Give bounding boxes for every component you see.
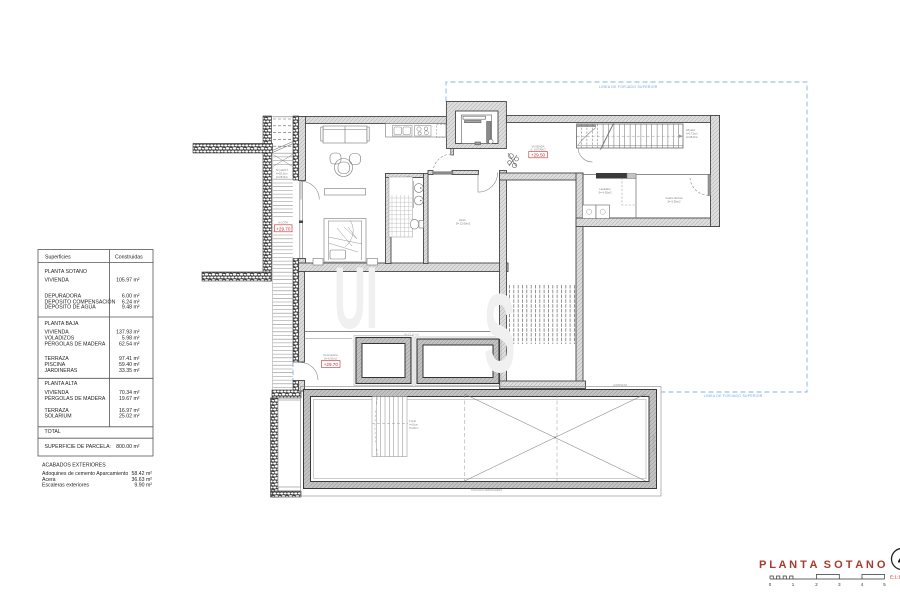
svg-text:Dorm.: Dorm. (459, 218, 467, 222)
svg-text:S: S (484, 272, 515, 397)
svg-text:18 peld.: 18 peld. (686, 128, 696, 132)
svg-text:+29.50: +29.50 (531, 153, 546, 158)
svg-text:33.35 m²: 33.35 m² (119, 368, 140, 374)
svg-text:105.97 m²: 105.97 m² (116, 278, 140, 284)
svg-text:S= 5.95m2: S= 5.95m2 (667, 200, 681, 204)
svg-text:TOTAL: TOTAL (45, 429, 61, 435)
svg-text:h=18.2cm: h=18.2cm (276, 171, 287, 175)
svg-text:19.67 m²: 19.67 m² (119, 396, 140, 402)
svg-text:Depuradora: Depuradora (323, 353, 338, 357)
svg-text:S= 4.05m2: S= 4.05m2 (598, 191, 612, 195)
svg-text:ACABADOS EXTERIORES: ACABADOS EXTERIORES (42, 463, 106, 469)
svg-text:SUPERFICIE DE PARCELA:: SUPERFICIE DE PARCELA: (45, 444, 112, 450)
svg-text:800.00 m²: 800.00 m² (116, 444, 140, 450)
svg-text:Construidas: Construidas (115, 255, 143, 261)
svg-text:H=28.0cm: H=28.0cm (686, 135, 698, 139)
svg-text:S. SOTANO: S. SOTANO (530, 147, 546, 151)
svg-text:H=28cm: H=28cm (409, 427, 418, 430)
svg-text:P L A N T A S O T A N O: P L A N T A S O T A N O (759, 559, 886, 571)
svg-text:+29.70: +29.70 (276, 226, 291, 231)
svg-text:Superficies: Superficies (45, 255, 71, 261)
svg-text:PLANTA SOTANO: PLANTA SOTANO (45, 269, 87, 275)
svg-text:JARDINERA: JARDINERA (613, 384, 628, 387)
svg-text:SOLARIUM: SOLARIUM (45, 414, 72, 420)
svg-text:PÉRGOLAS DE MADERA: PÉRGOLAS DE MADERA (45, 341, 106, 348)
svg-text:JARDINERAS: JARDINERAS (45, 368, 78, 374)
svg-text:H=28.0cm: H=28.0cm (276, 175, 288, 179)
svg-text:Lavadero: Lavadero (599, 187, 611, 191)
svg-text:A COTA: A COTA (278, 221, 288, 225)
svg-text:+29.70: +29.70 (324, 362, 339, 367)
svg-text:PÉRGOLAS DE MADERA: PÉRGOLAS DE MADERA (45, 395, 106, 402)
svg-text:9.48 m²: 9.48 m² (122, 305, 140, 311)
svg-text:9.90 m²: 9.90 m² (134, 483, 152, 489)
svg-text:Nº peld.17: Nº peld.17 (276, 168, 289, 172)
svg-text:CANALETA REBOSADERO: CANALETA REBOSADERO (471, 489, 502, 492)
svg-text:Escaleras exteriores: Escaleras exteriores (42, 483, 89, 489)
svg-text:LINEA DE FORJADO SUPERIOR: LINEA DE FORJADO SUPERIOR (704, 394, 763, 398)
svg-text:VIVIENDA: VIVIENDA (45, 278, 70, 284)
svg-text:UI: UI (334, 248, 378, 347)
svg-text:62.54 m²: 62.54 m² (119, 342, 140, 348)
svg-text:S= 13.10 m2: S= 13.10 m2 (404, 333, 419, 337)
svg-text:E:1:100: E:1:100 (890, 575, 900, 580)
svg-text:VASO PISCINA: VASO PISCINA (653, 434, 656, 452)
svg-text:PLANTA BAJA: PLANTA BAJA (45, 321, 79, 327)
svg-text:LINEA DE FORJADO SUPERIOR: LINEA DE FORJADO SUPERIOR (599, 85, 658, 89)
svg-text:S= 6.00m2: S= 6.00m2 (324, 356, 338, 360)
svg-text:Cuarto técnico: Cuarto técnico (665, 196, 683, 200)
svg-text:DEPOSITO DE AGUA: DEPOSITO DE AGUA (45, 305, 97, 311)
svg-text:S= 12.60m2: S= 12.60m2 (456, 222, 471, 226)
svg-text:25.02 m²: 25.02 m² (119, 414, 140, 420)
svg-text:PLANTA ALTA: PLANTA ALTA (45, 381, 78, 387)
svg-text:h=17.2cm: h=17.2cm (686, 132, 697, 136)
